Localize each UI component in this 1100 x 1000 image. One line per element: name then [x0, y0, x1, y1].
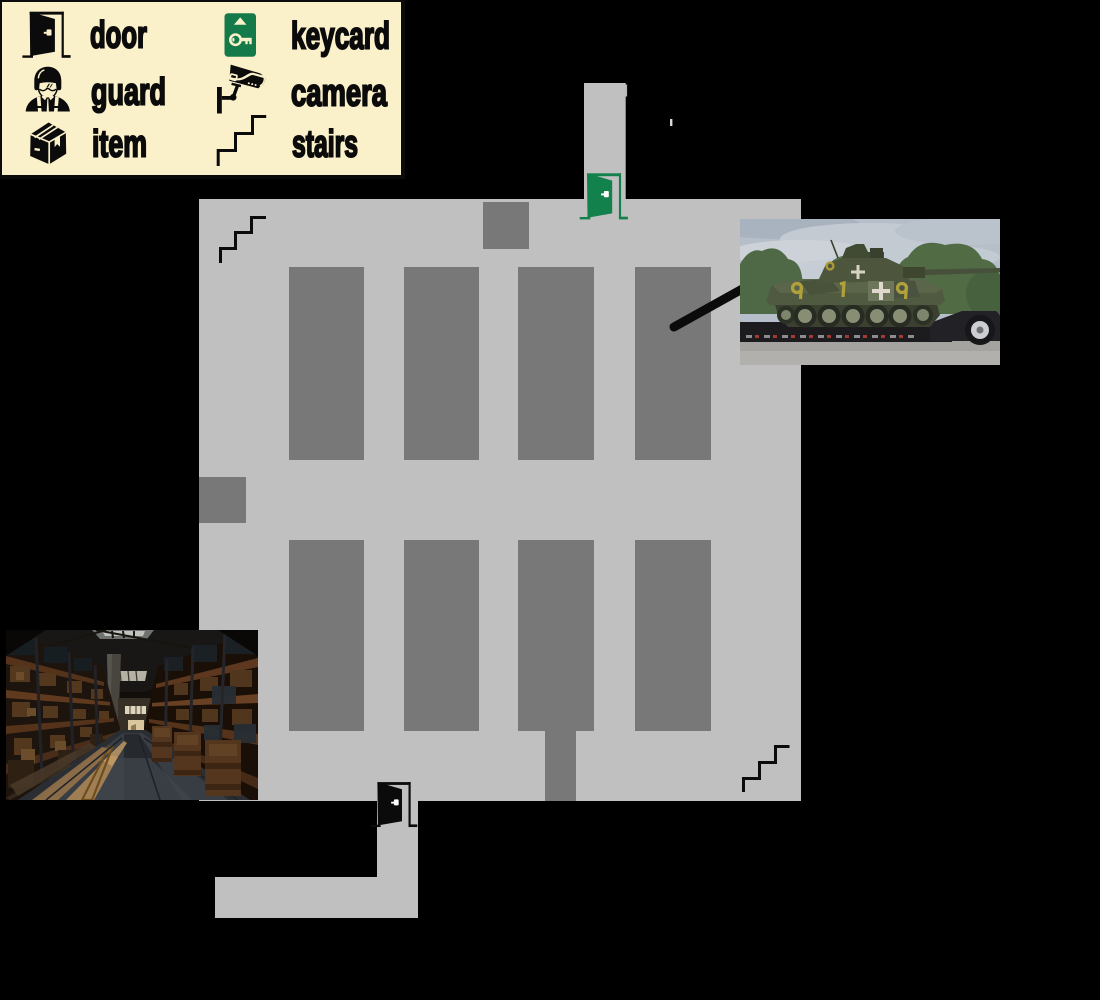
svg-text:guard: guard: [91, 72, 166, 114]
svg-text:keycard: keycard: [291, 16, 390, 58]
svg-text:stairs: stairs: [292, 124, 358, 166]
svg-text:item: item: [92, 124, 147, 166]
svg-text:camera: camera: [291, 73, 388, 115]
svg-text:door: door: [90, 15, 147, 57]
